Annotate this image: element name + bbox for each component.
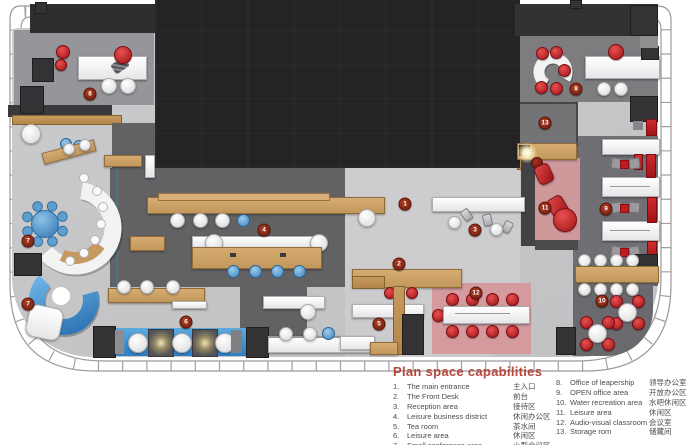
legend: Plan space capabilities 1. The main entr… bbox=[0, 0, 700, 445]
legend-item: 13. Storage rom 储藏间 bbox=[556, 427, 693, 437]
legend-item-number: 6. bbox=[393, 431, 407, 440]
legend-item-label-en: Leisure area bbox=[407, 431, 513, 440]
legend-item-label-en: The main entrance bbox=[407, 382, 513, 391]
legend-item-label-en: Reception area bbox=[407, 402, 513, 411]
legend-item-label-en: Storage rom bbox=[570, 427, 649, 436]
legend-item-label-en: Small conference area bbox=[407, 441, 513, 445]
legend-item-number: 5. bbox=[393, 422, 407, 431]
legend-column-1: 1. The main entrance 主入口 2. The Front De… bbox=[393, 382, 561, 445]
legend-item-label-en: Tea room bbox=[407, 422, 513, 431]
legend-item-number: 11. bbox=[556, 408, 570, 417]
legend-item-number: 9. bbox=[556, 388, 570, 397]
legend-item-label-en: Leisure area bbox=[570, 408, 649, 417]
legend-item-label-en: Audio-visual classroom bbox=[570, 418, 649, 427]
legend-item-label-en: The Front Desk bbox=[407, 392, 513, 401]
legend-item-number: 10. bbox=[556, 398, 570, 407]
floor-plan-canvas: 1 2 3 4 5 6 7 7 8 8 9 10 11 12 13 bbox=[0, 0, 700, 445]
legend-column-2: 8. Office of leapership 领导办公室 9. OPEN of… bbox=[556, 378, 693, 437]
legend-item-label-en: Office of leapership bbox=[570, 378, 649, 387]
legend-item-label-zh: 小型会议区 bbox=[513, 440, 561, 445]
legend-item-number: 7. bbox=[393, 441, 407, 445]
legend-item-number: 13. bbox=[556, 427, 570, 436]
legend-item-number: 1. bbox=[393, 382, 407, 391]
legend-item-number: 3. bbox=[393, 402, 407, 411]
legend-item-label-en: OPEN office area bbox=[570, 388, 649, 397]
legend-item-number: 12. bbox=[556, 418, 570, 427]
legend-item: 7. Small conference area 小型会议区 bbox=[393, 441, 561, 445]
legend-item-label-en: Water recreation area bbox=[570, 398, 649, 407]
legend-item-number: 2. bbox=[393, 392, 407, 401]
legend-item-number: 8. bbox=[556, 378, 570, 387]
legend-title: Plan space capabilities bbox=[393, 364, 542, 379]
legend-item-label-en: Leisure business district bbox=[407, 412, 513, 421]
legend-item-label-zh: 储藏间 bbox=[649, 426, 693, 437]
legend-item-number: 4. bbox=[393, 412, 407, 421]
